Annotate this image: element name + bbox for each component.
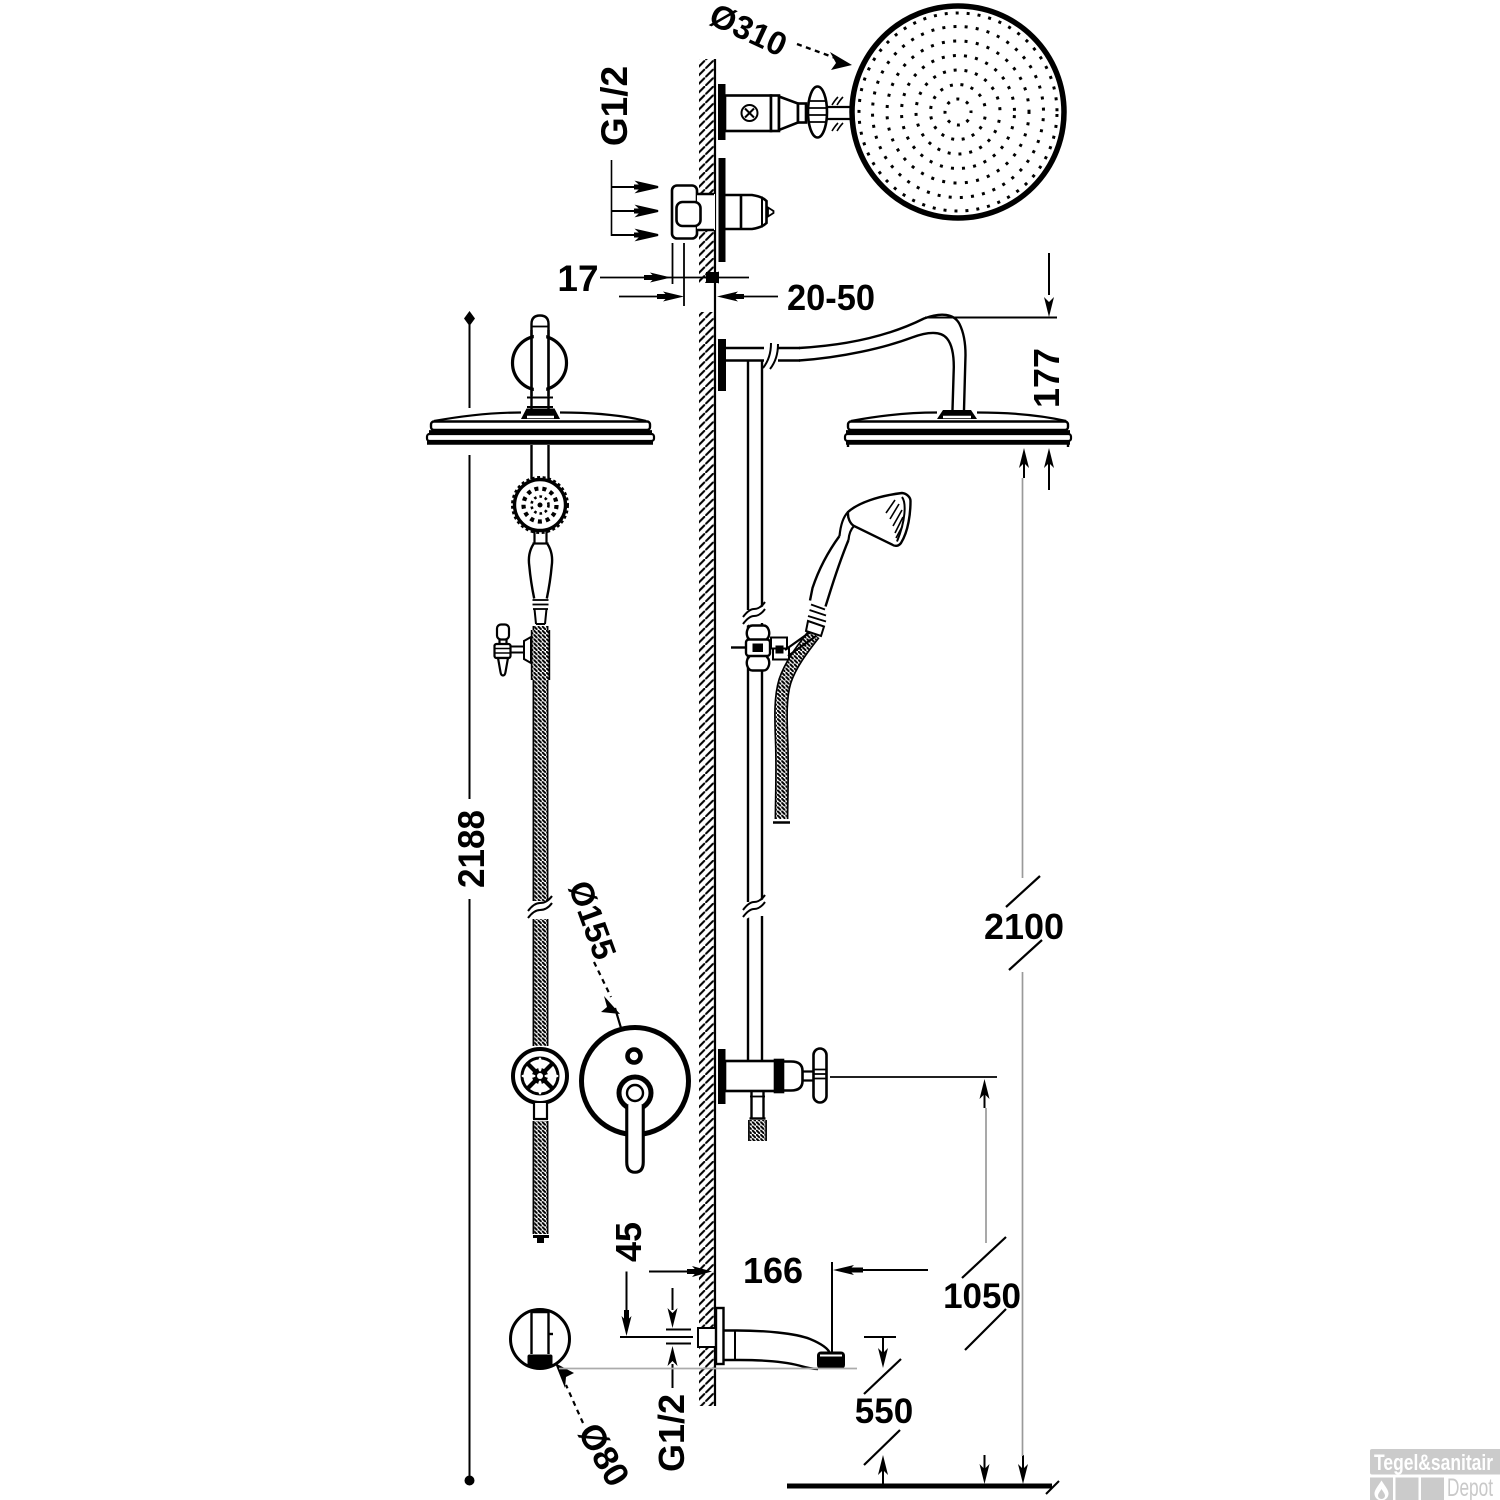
svg-text:2188: 2188 [451,810,492,888]
svg-text:G1/2: G1/2 [651,1394,692,1472]
svg-text:G1/2: G1/2 [594,66,635,146]
svg-text:17: 17 [557,258,598,299]
svg-text:Tegel&sanitair: Tegel&sanitair [1374,1450,1493,1475]
svg-text:20-50: 20-50 [787,277,875,318]
svg-text:2100: 2100 [984,906,1064,947]
svg-text:550: 550 [855,1392,913,1431]
svg-text:Depot: Depot [1447,1474,1493,1500]
svg-text:45: 45 [608,1222,649,1262]
svg-text:166: 166 [743,1250,803,1291]
svg-text:177: 177 [1026,348,1067,408]
svg-text:1050: 1050 [943,1277,1021,1316]
